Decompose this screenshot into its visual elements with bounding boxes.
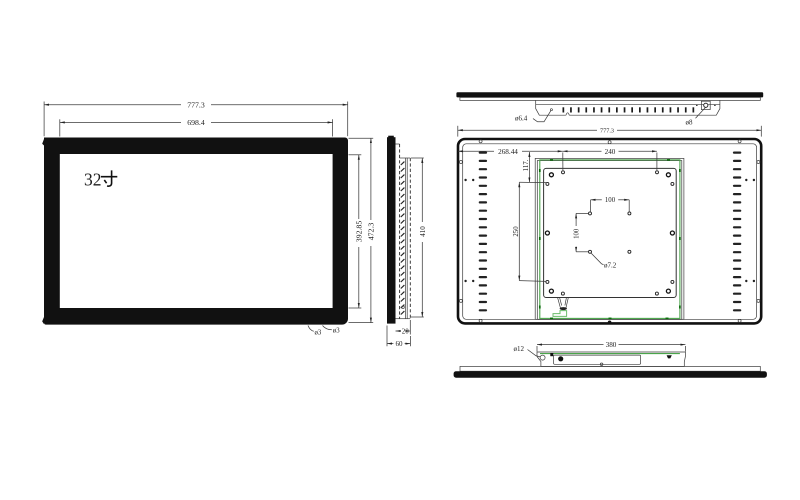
svg-text:ø6.4: ø6.4 <box>515 114 528 122</box>
svg-text:392.85: 392.85 <box>354 221 363 243</box>
svg-text:ø12: ø12 <box>514 345 525 353</box>
svg-text:60: 60 <box>396 340 404 348</box>
svg-text:410: 410 <box>419 226 427 237</box>
svg-text:240: 240 <box>605 148 616 156</box>
svg-text:268.44: 268.44 <box>498 148 518 156</box>
svg-text:380: 380 <box>606 341 617 349</box>
svg-text:698.4: 698.4 <box>187 118 205 127</box>
svg-text:20: 20 <box>402 327 410 335</box>
svg-text:ø3: ø3 <box>315 330 322 337</box>
svg-text:ø8: ø8 <box>686 118 694 126</box>
svg-text:472.3: 472.3 <box>366 223 375 241</box>
svg-text:ø7.2: ø7.2 <box>604 262 617 270</box>
svg-text:32: 32 <box>84 170 102 190</box>
svg-text:777.3: 777.3 <box>600 127 614 134</box>
svg-text:100: 100 <box>574 228 581 239</box>
svg-text:100: 100 <box>605 197 616 204</box>
svg-text:777.3: 777.3 <box>187 100 205 109</box>
svg-text:250: 250 <box>513 226 520 237</box>
svg-text:117.: 117. <box>523 159 530 171</box>
svg-text:ø3: ø3 <box>333 328 340 335</box>
